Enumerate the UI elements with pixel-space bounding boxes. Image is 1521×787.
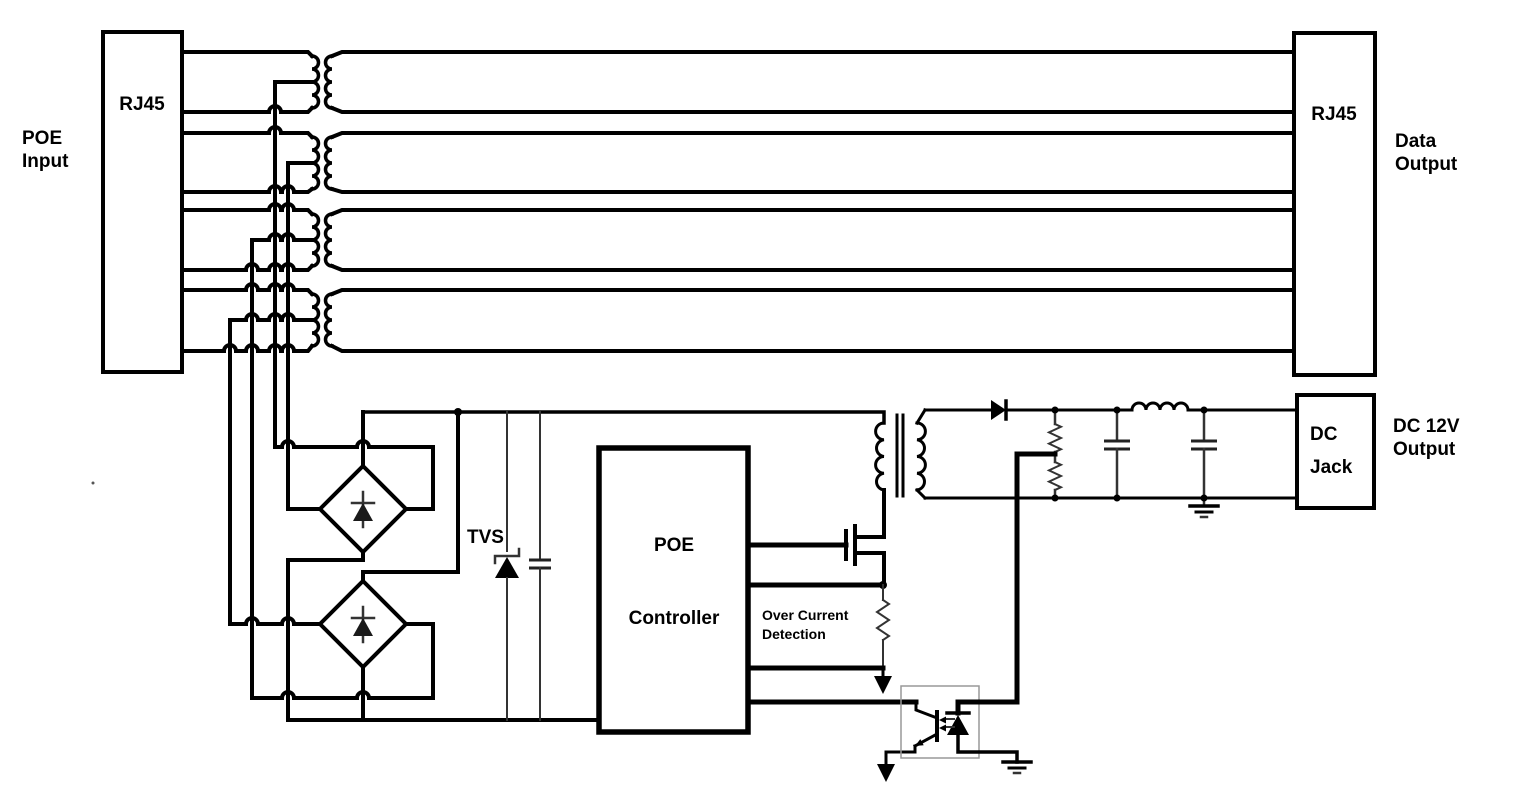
over-current-label-1: Over Current: [762, 607, 849, 623]
dc-12v-output-label-2: Output: [1393, 439, 1456, 460]
junction-dot: [1201, 407, 1208, 414]
center-tap-line: [230, 314, 312, 320]
input-capacitor: [529, 412, 551, 720]
poe-controller-box: [599, 448, 748, 732]
mosfet-switch: [748, 490, 892, 694]
rj45-input-box: [103, 32, 182, 372]
output-stage: [925, 400, 1297, 517]
poe-controller: POE Controller: [599, 448, 748, 732]
phototransistor-collector: [916, 702, 937, 718]
data-line: [332, 346, 1294, 351]
rj45-pin-line: [182, 204, 312, 214]
schematic-svg: POE Controller: [0, 0, 1521, 787]
dc-jack-label-2: Jack: [1310, 457, 1353, 478]
stray-dot: [92, 482, 95, 485]
dc-jack-box: [1297, 395, 1374, 508]
data-line: [332, 290, 1294, 294]
bridge-rectifiers: [288, 408, 599, 720]
data-line: [332, 266, 1294, 270]
poe-splitter-circuit-diagram: POE Controller: [0, 0, 1521, 787]
feedback-vertical-line: [958, 454, 1017, 713]
rj45-pin-line: [182, 106, 312, 112]
poe-controller-label-1: POE: [654, 535, 694, 556]
mosfet-drain: [855, 490, 884, 537]
rj45-pin-line: [182, 284, 312, 294]
rj45-pin-line: [182, 52, 312, 56]
junction-dot: [1052, 407, 1059, 414]
rj45-output-label: RJ45: [1311, 104, 1357, 125]
rj45-pin-line: [182, 345, 312, 351]
rj45-input-label: RJ45: [119, 94, 165, 115]
flyback-secondary-coil: [917, 423, 925, 490]
rj45-pin-line: [182, 186, 312, 192]
output-capacitor-2: [1191, 410, 1217, 498]
data-line: [332, 133, 1294, 137]
secondary-top-lead: [917, 410, 925, 423]
poe-input-label-1: POE: [22, 128, 62, 149]
positive-rail: [363, 412, 884, 423]
rj45-pin-line: [182, 127, 312, 137]
dc-jack-label-1: DC: [1310, 424, 1338, 445]
poe-controller-label-2: Controller: [629, 608, 720, 629]
tvs-diode: [495, 412, 519, 720]
isolation-transformer-secondary: [326, 137, 333, 189]
rj45-output-box: [1294, 33, 1375, 375]
data-output-label-1: Data: [1395, 131, 1437, 152]
dc-12v-output-label-1: DC 12V: [1393, 416, 1460, 437]
junction-dot: [1114, 407, 1121, 414]
output-capacitor-1: [1104, 410, 1130, 498]
data-output-label-2: Output: [1395, 154, 1458, 175]
ground-arrow: [877, 764, 895, 782]
earth-ground-opto: [1003, 762, 1031, 773]
data-line: [332, 210, 1294, 214]
isolation-transformer-secondary: [326, 294, 333, 346]
current-sense-resistor: [877, 600, 889, 640]
isolation-transformer-secondary: [326, 214, 333, 266]
rj45-pin-line: [182, 264, 312, 270]
feedback-voltage-divider: [1017, 410, 1061, 498]
data-line: [332, 189, 1294, 192]
output-filter-inductor: [1132, 403, 1188, 410]
junction-dot: [1201, 495, 1208, 502]
mosfet-source: [855, 553, 884, 585]
flyback-transformer: [876, 410, 926, 498]
junction-dot: [1114, 495, 1121, 502]
power-tap-vertical: [275, 82, 433, 509]
flyback-primary-coil: [876, 423, 884, 490]
ground-arrow: [874, 668, 892, 694]
output-rectifier-diode: [991, 400, 1006, 420]
junction-dot: [1052, 495, 1059, 502]
tvs-label: TVS: [467, 527, 504, 548]
data-line: [332, 108, 1294, 112]
over-current-label-2: Detection: [762, 626, 826, 642]
poe-input-label-2: Input: [22, 151, 69, 172]
data-line: [332, 52, 1294, 56]
isolation-transformer-secondary: [326, 56, 333, 108]
optocoupler-box: [901, 686, 979, 758]
center-tap-line: [252, 234, 312, 240]
